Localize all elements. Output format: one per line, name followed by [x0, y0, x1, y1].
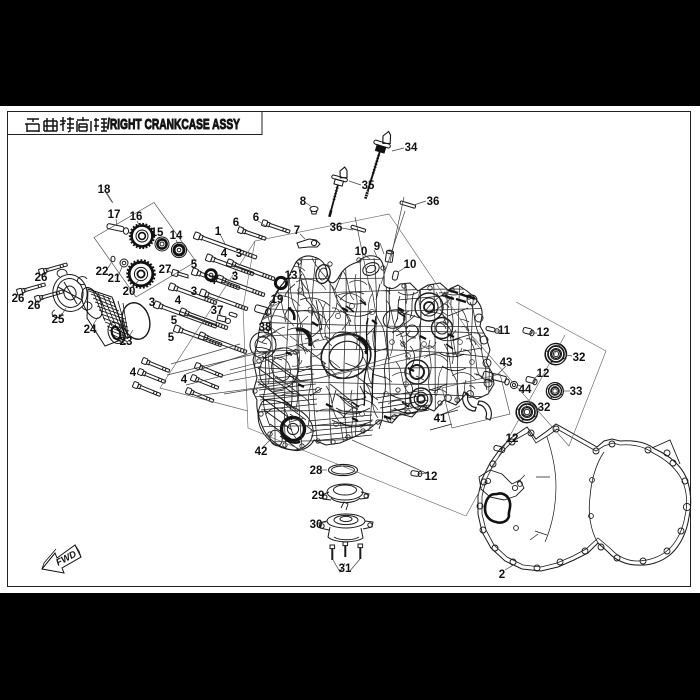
svg-text:10: 10	[355, 246, 368, 258]
svg-text:7: 7	[294, 225, 300, 237]
svg-text:4: 4	[221, 248, 228, 260]
svg-text:3: 3	[236, 248, 242, 260]
svg-text:4: 4	[130, 367, 137, 379]
svg-text:15: 15	[151, 227, 164, 239]
svg-text:11: 11	[498, 325, 511, 337]
svg-text:31: 31	[339, 563, 352, 575]
svg-text:12: 12	[425, 471, 438, 483]
svg-text:38: 38	[259, 322, 272, 334]
svg-text:3: 3	[191, 286, 197, 298]
svg-text:10: 10	[404, 259, 417, 271]
svg-text:6: 6	[253, 212, 259, 224]
svg-text:2: 2	[499, 569, 505, 581]
svg-text:14: 14	[170, 230, 183, 242]
svg-text:44: 44	[519, 384, 532, 396]
svg-text:26: 26	[12, 293, 25, 305]
svg-text:5: 5	[168, 332, 175, 344]
svg-text:23: 23	[120, 336, 133, 348]
svg-text:29: 29	[312, 490, 325, 502]
svg-text:13: 13	[285, 270, 298, 282]
svg-text:17: 17	[108, 209, 121, 221]
svg-text:28: 28	[310, 465, 323, 477]
svg-text:9: 9	[374, 241, 380, 253]
svg-text:26: 26	[35, 272, 48, 284]
svg-text:36: 36	[427, 196, 440, 208]
svg-text:1: 1	[215, 226, 222, 238]
svg-text:30: 30	[310, 519, 323, 531]
svg-text:36: 36	[330, 222, 343, 234]
svg-text:/RIGHT CRANKCASE ASSY: /RIGHT CRANKCASE ASSY	[107, 116, 240, 133]
svg-text:24: 24	[84, 324, 97, 336]
svg-text:4: 4	[175, 295, 182, 307]
svg-text:22: 22	[96, 266, 109, 278]
svg-text:12: 12	[537, 368, 550, 380]
svg-text:3: 3	[232, 271, 238, 283]
svg-text:26: 26	[28, 300, 41, 312]
svg-text:5: 5	[191, 259, 198, 271]
svg-text:41: 41	[434, 413, 447, 425]
svg-text:33: 33	[570, 386, 583, 398]
svg-text:3: 3	[149, 297, 155, 309]
svg-text:12: 12	[537, 327, 550, 339]
svg-text:19: 19	[271, 294, 284, 306]
svg-text:8: 8	[300, 196, 307, 208]
svg-text:32: 32	[538, 402, 551, 414]
svg-text:34: 34	[405, 142, 418, 154]
svg-text:35: 35	[362, 180, 375, 192]
svg-text:21: 21	[108, 273, 121, 285]
svg-text:12: 12	[506, 433, 519, 445]
svg-text:6: 6	[233, 217, 239, 229]
svg-text:27: 27	[159, 264, 172, 276]
svg-text:5: 5	[171, 315, 178, 327]
svg-text:4: 4	[210, 275, 217, 287]
svg-text:16: 16	[130, 211, 143, 223]
svg-text:43: 43	[500, 357, 513, 369]
svg-text:25: 25	[52, 314, 65, 326]
svg-text:32: 32	[573, 352, 586, 364]
svg-text:4: 4	[181, 374, 188, 386]
svg-text:20: 20	[123, 286, 136, 298]
svg-text:18: 18	[98, 184, 111, 196]
svg-text:37: 37	[211, 305, 224, 317]
svg-text:42: 42	[255, 446, 268, 458]
